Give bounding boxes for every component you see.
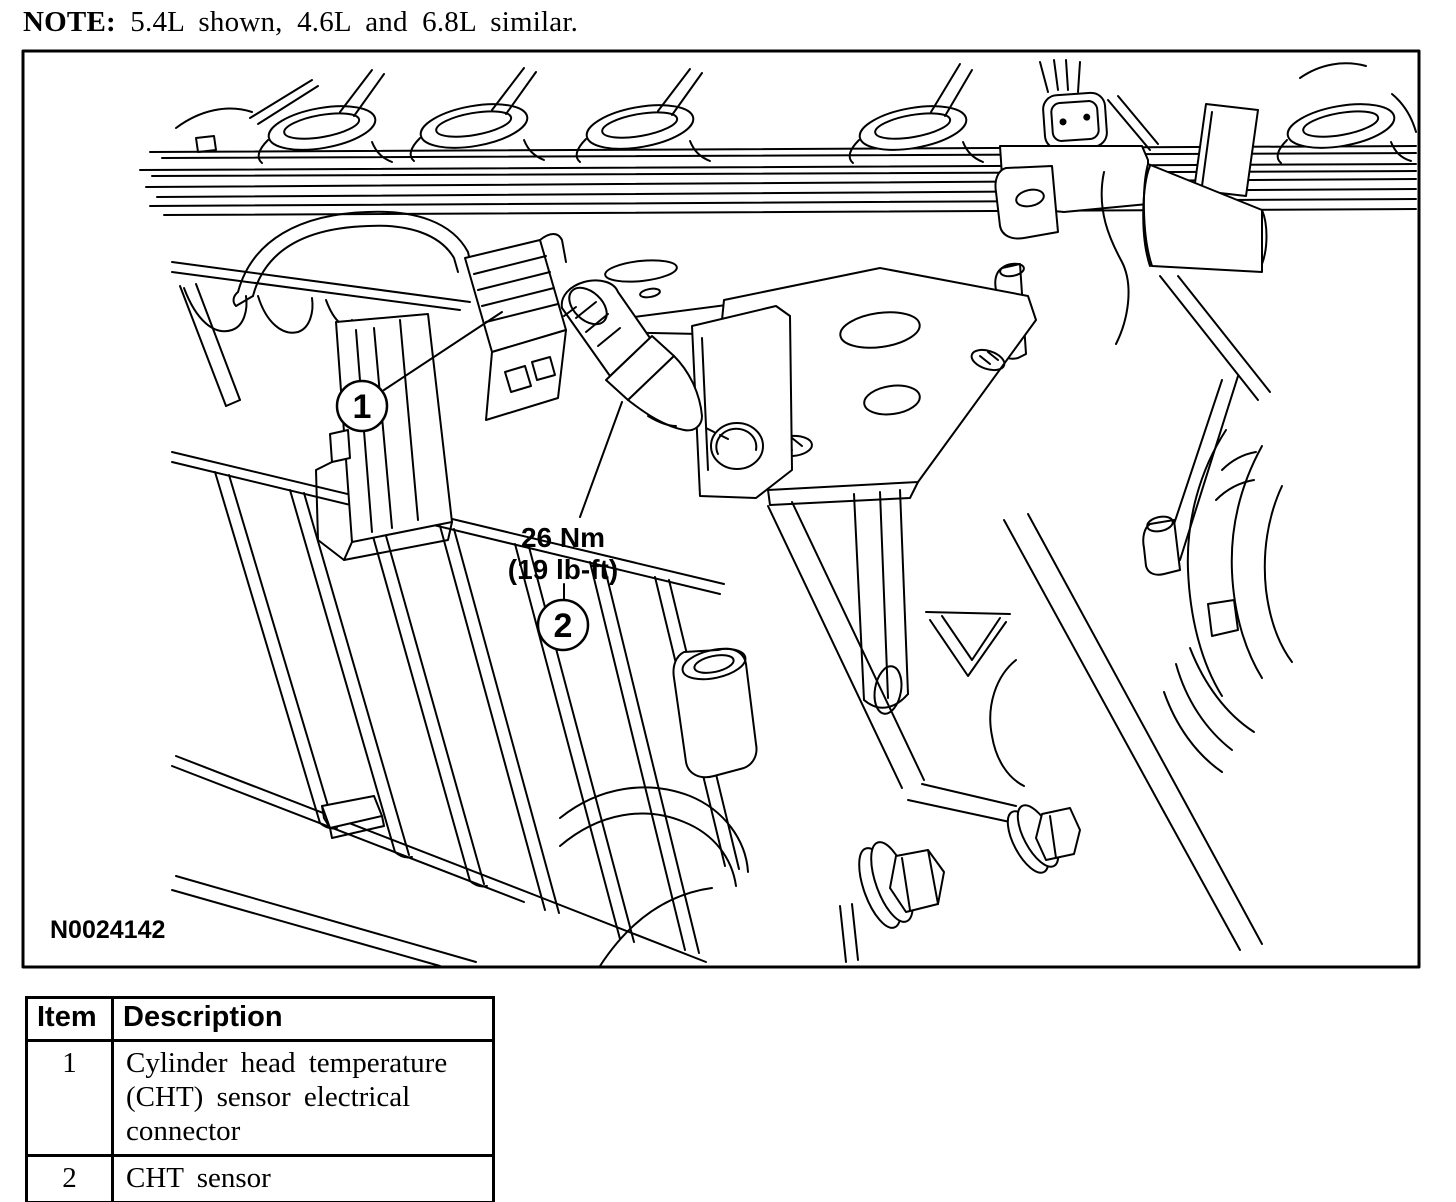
item-description: CHT sensor [113,1156,494,1202]
figure-id: N0024142 [50,916,165,944]
col-header-description: Description [113,998,494,1041]
torque-value: 26 Nm [521,522,605,553]
item-number: 1 [27,1041,113,1156]
table-row: 2 CHT sensor [27,1156,494,1202]
callout-2-leader [580,402,622,517]
stanchion-post [316,314,452,560]
ribbed-block [172,452,739,966]
service-manual-page: NOTE: 5.4L shown, 4.6L and 6.8L similar. [0,0,1456,1202]
wiring-harness [234,212,472,306]
callout-2-number: 2 [554,607,573,645]
parts-table: Item Description 1 Cylinder head tempera… [25,996,495,1202]
manifold-flange [718,268,1262,950]
bottom-brackets [560,612,1080,966]
pulley-arcs [1143,376,1292,772]
torque-value-imperial: (19 lb-ft) [508,554,618,585]
sensor-boss [692,306,792,498]
table-header-row: Item Description [27,998,494,1041]
square-connector [1042,92,1108,150]
table-row: 1 Cylinder head temperature (CHT) sensor… [27,1041,494,1156]
item-number: 2 [27,1156,113,1202]
item-description: Cylinder head temperature (CHT) sensor e… [113,1041,494,1156]
col-header-item: Item [27,998,113,1041]
callout-1-number: 1 [353,388,372,426]
right-top-structures [995,60,1270,400]
